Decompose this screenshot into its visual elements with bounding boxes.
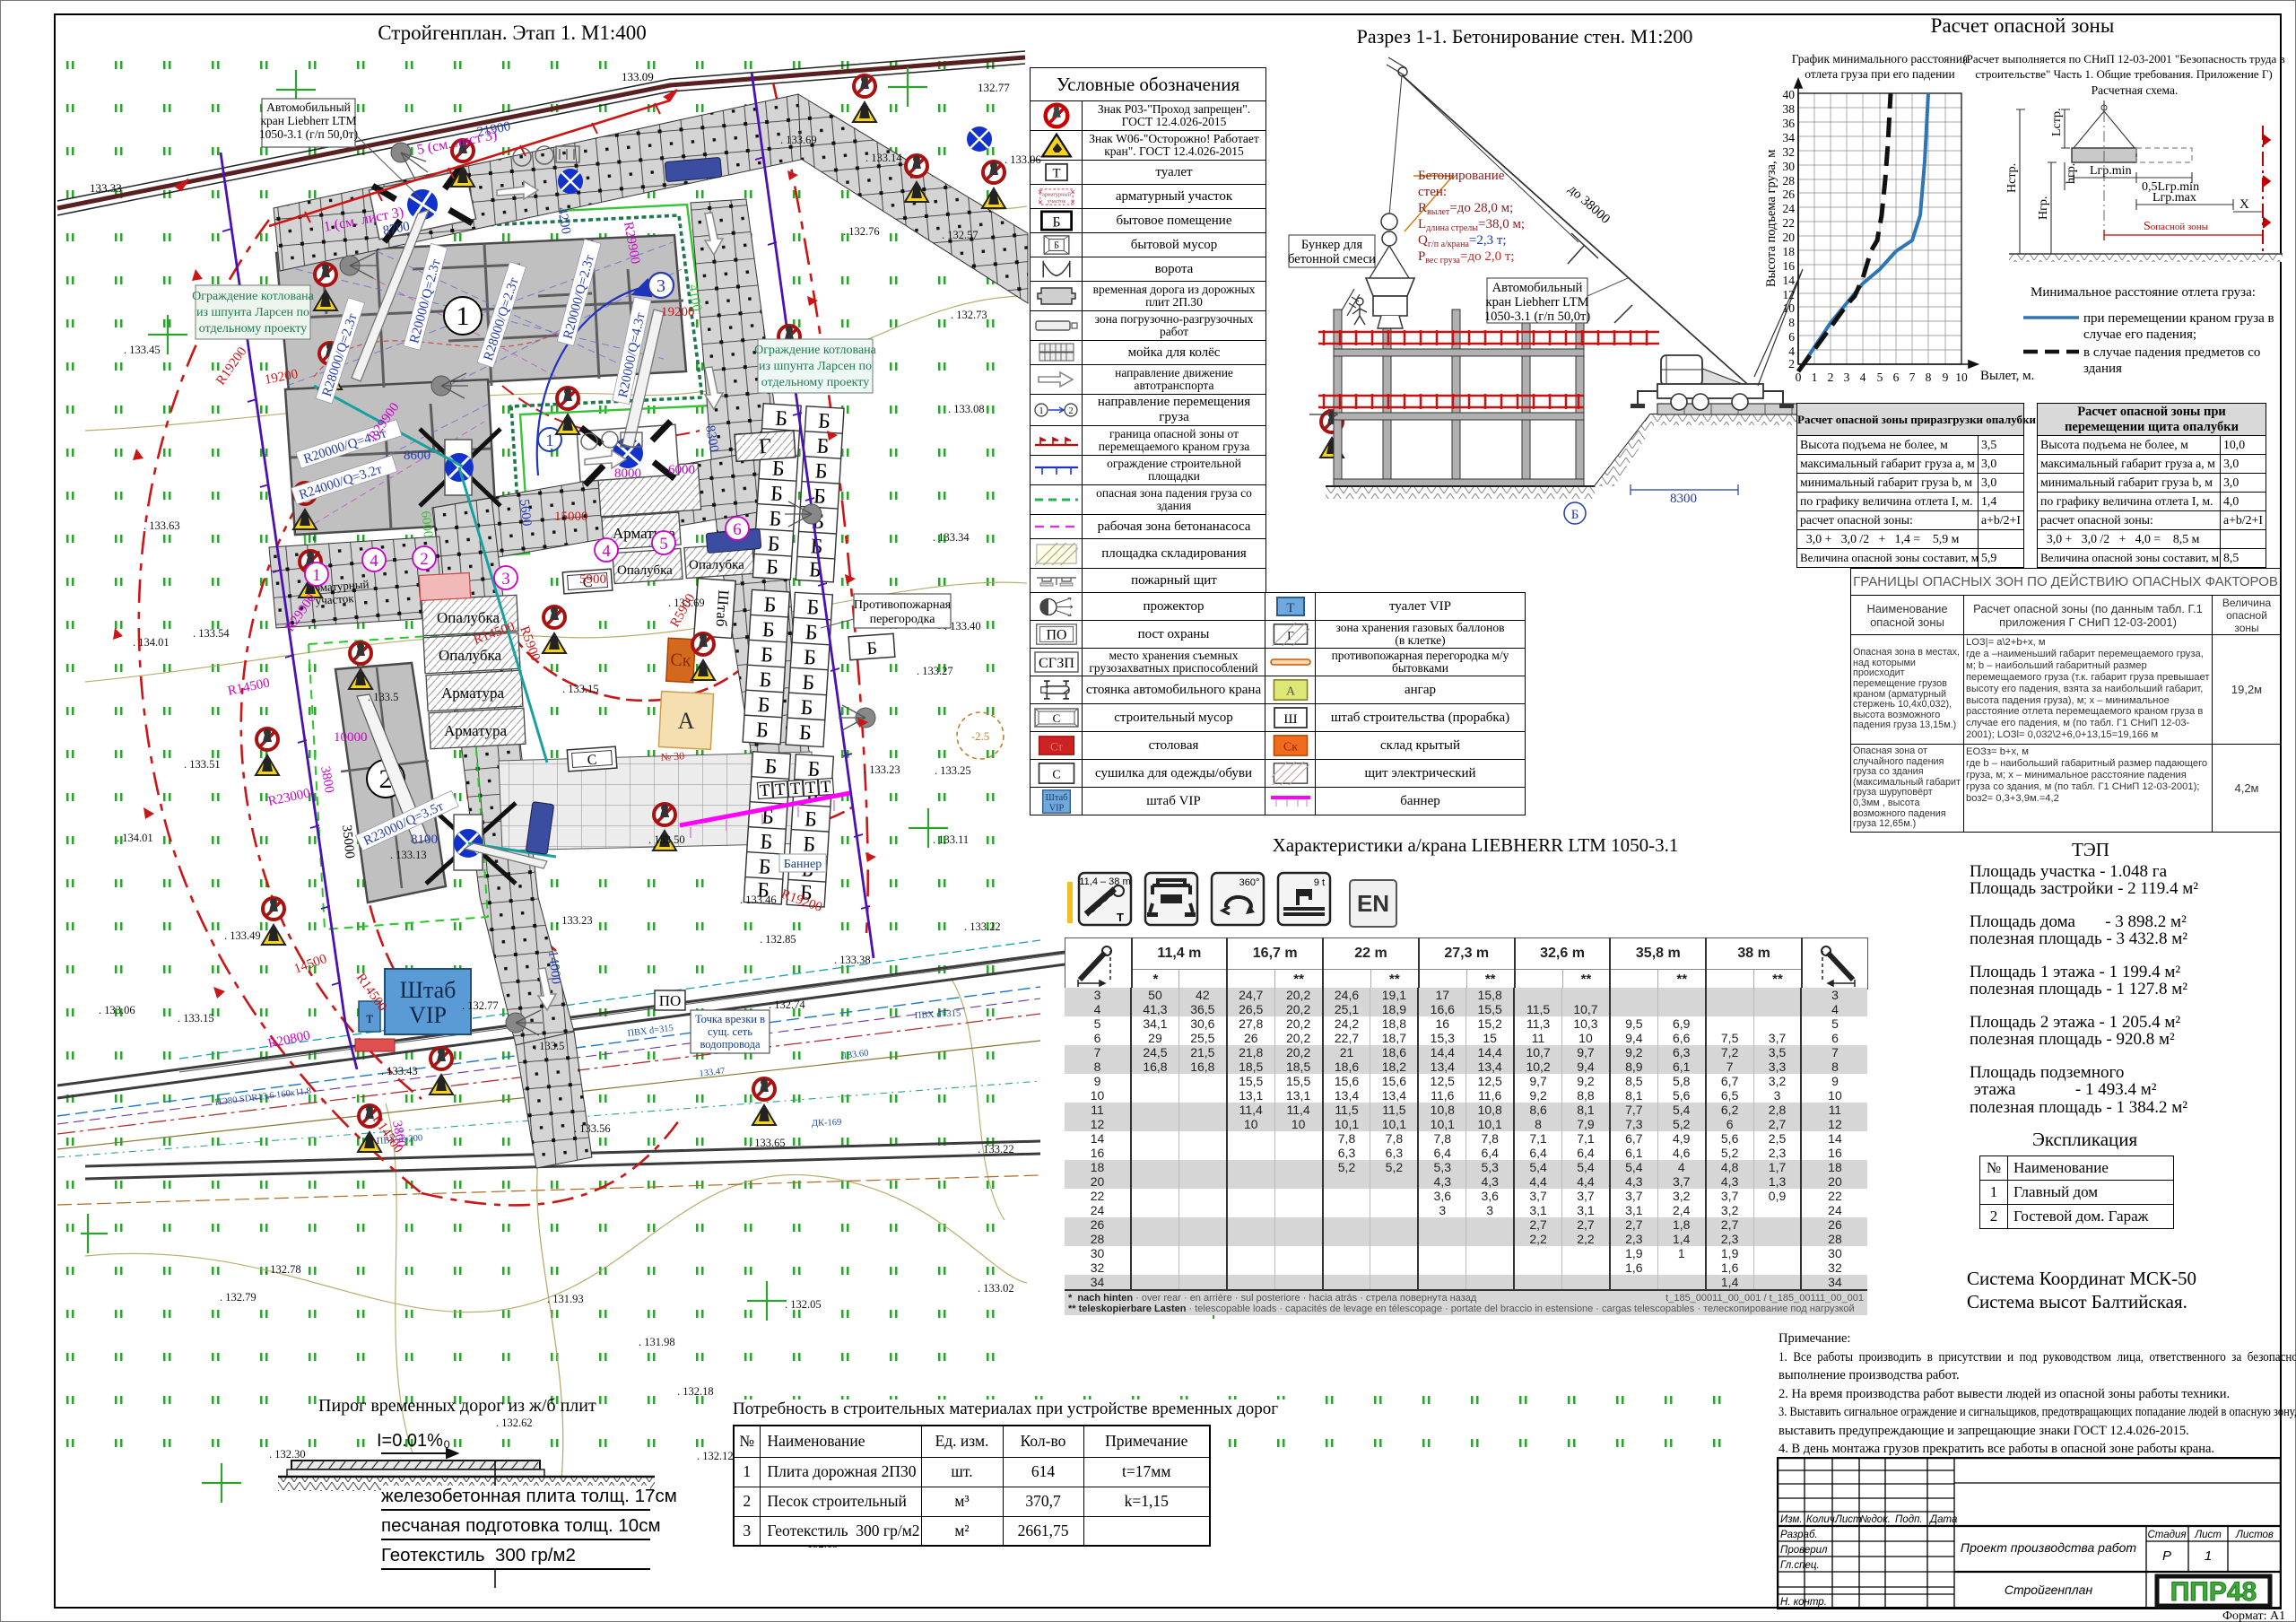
svg-text:4: 4 (602, 542, 611, 561)
svg-text:. 134.01: . 134.01 (117, 832, 153, 844)
svg-text:Расчетная схема.: Расчетная схема. (2092, 83, 2179, 97)
svg-text:Б: Б (769, 507, 782, 531)
svg-text:VIP: VIP (409, 1002, 447, 1028)
svg-text:. 133.38: . 133.38 (834, 954, 871, 966)
svg-text:Б: Б (1571, 508, 1579, 522)
svg-text:С: С (587, 753, 597, 769)
svg-text:Ш: Ш (1283, 712, 1297, 727)
svg-text:Ск: Ск (670, 650, 691, 670)
svg-text:1050-3.1 (г/п 50,0т): 1050-3.1 (г/п 50,0т) (259, 127, 358, 141)
svg-text:26: 26 (1783, 187, 1796, 201)
svg-text:Опалубка: Опалубка (689, 558, 744, 572)
svg-text:. 132.77: . 132.77 (462, 999, 499, 1012)
svg-text:Нгр.: Нгр. (2037, 196, 2050, 220)
svg-text:28: 28 (1783, 174, 1796, 187)
svg-text:6: 6 (733, 520, 742, 539)
svg-text:. 133.50: . 133.50 (648, 833, 685, 846)
svg-text:. 131.93: . 131.93 (547, 1293, 584, 1305)
svg-text:Б: Б (761, 618, 775, 642)
svg-text:. 133.69: . 133.69 (780, 134, 817, 146)
svg-text:hгр.: hгр. (2065, 163, 2078, 184)
svg-text:перегородка: перегородка (870, 613, 936, 626)
svg-text:6: 6 (1893, 371, 1900, 384)
svg-text:Б: Б (800, 696, 813, 720)
svg-text:Бетонирование: Бетонирование (1418, 169, 1505, 183)
svg-text:Минимальное расстояние отлета: Минимальное расстояние отлета груза: (2031, 285, 2256, 300)
svg-text:1: 1 (312, 566, 321, 585)
svg-text:8: 8 (1788, 316, 1795, 329)
svg-text:Б: Б (803, 833, 816, 857)
svg-text:. 133.15: . 133.15 (562, 683, 599, 695)
svg-text:. 133.23: . 133.23 (864, 763, 900, 776)
svg-text:С: С (1052, 711, 1060, 725)
svg-text:. 133.54: . 133.54 (193, 627, 230, 640)
svg-text:Вылет, м.: Вылет, м. (1980, 369, 2034, 383)
svg-text:36: 36 (1783, 117, 1796, 130)
svg-text:. 133.63: . 133.63 (143, 519, 180, 532)
svg-text:2: 2 (1068, 406, 1073, 416)
svg-text:(Расчет выполняется по СНиП 12: (Расчет выполняется по СНиП 12-03-2001 "… (1962, 52, 2284, 65)
svg-text:Б: Б (757, 693, 770, 718)
svg-text:1: 1 (457, 301, 470, 331)
svg-text:Т: Т (789, 780, 801, 799)
svg-text:Б: Б (759, 668, 772, 693)
svg-text:№док.: №док. (1860, 1514, 1891, 1525)
svg-text:15000: 15000 (554, 510, 588, 524)
svg-text:EN: EN (1357, 890, 1389, 917)
svg-text:Штаб: Штаб (400, 977, 457, 1003)
svg-text:2: 2 (1788, 357, 1795, 371)
svg-text:Б: Б (764, 755, 778, 780)
svg-text:3: 3 (657, 276, 665, 296)
svg-text:сущ. сеть: сущ. сеть (708, 1025, 752, 1038)
svg-text:11,4 – 38 m: 11,4 – 38 m (1079, 876, 1130, 887)
svg-text:Pвес груза=до 2,0 т;: Pвес груза=до 2,0 т; (1418, 249, 1515, 266)
svg-text:Г: Г (1287, 629, 1294, 642)
svg-text:Опалубка: Опалубка (437, 609, 500, 626)
svg-text:Расчет опасной зоны: Расчет опасной зоны (1931, 14, 2115, 37)
svg-text:Б: Б (798, 721, 812, 746)
svg-text:. 133.15: . 133.15 (178, 1012, 214, 1025)
svg-text:Б: Б (817, 410, 831, 434)
svg-text:участок: участок (1047, 198, 1065, 205)
svg-text:Б: Б (803, 646, 816, 670)
svg-text:20: 20 (1783, 231, 1796, 244)
svg-text:5600: 5600 (517, 499, 534, 528)
svg-text:10: 10 (1955, 371, 1968, 384)
svg-text:Т: Т (1286, 601, 1294, 615)
svg-text:Б: Б (1052, 214, 1060, 230)
svg-text:Б: Б (755, 719, 769, 743)
svg-text:Ск: Ск (1283, 741, 1297, 754)
svg-text:. 132.57: . 132.57 (942, 229, 978, 241)
svg-text:12: 12 (1783, 288, 1796, 301)
svg-text:32: 32 (1783, 145, 1796, 159)
svg-text:Стадия: Стадия (2147, 1530, 2186, 1540)
svg-text:132.77: 132.77 (978, 81, 1010, 94)
svg-text:133.09: 133.09 (622, 70, 654, 83)
svg-text:Разрез 1-1. Бетонирование стен: Разрез 1-1. Бетонирование стен. М1:200 (1357, 25, 1693, 48)
svg-text:А: А (1285, 685, 1294, 699)
svg-text:1: 1 (2205, 1548, 2212, 1564)
svg-text:34: 34 (1783, 131, 1796, 144)
svg-text:Баннер: Баннер (784, 858, 822, 871)
svg-text:Б: Б (770, 482, 783, 506)
svg-text:Б: Б (802, 671, 815, 695)
svg-text:Б: Б (804, 621, 818, 645)
svg-text:случае его падения;: случае его падения; (2083, 327, 2196, 342)
svg-text:. 131.98: . 131.98 (639, 1336, 675, 1348)
svg-text:. 133.23: . 133.23 (556, 914, 593, 927)
svg-text:. 132.79: . 132.79 (220, 1291, 257, 1304)
svg-text:9: 9 (1943, 371, 1949, 384)
svg-text:Б: Б (771, 458, 785, 482)
svg-text:Опалубка: Опалубка (617, 563, 673, 578)
svg-text:. 132.73: . 132.73 (951, 309, 987, 321)
svg-text:10: 10 (1783, 301, 1796, 315)
svg-text:Бункер для: Бункер для (1301, 238, 1363, 252)
svg-text:Разраб.: Разраб. (1780, 1530, 1818, 1540)
svg-text:. 133.22: . 133.22 (964, 920, 1001, 933)
svg-text:из шпунта Ларсен по: из шпунта Ларсен по (759, 360, 872, 373)
svg-text:кран Liebherr LTM: кран Liebherr LTM (260, 114, 356, 127)
svg-text:Б: Б (804, 807, 817, 832)
svg-text:Б: Б (814, 459, 828, 484)
svg-text:14: 14 (1783, 274, 1796, 287)
svg-text:4: 4 (1788, 344, 1795, 358)
svg-text:отдельному проекту: отдельному проекту (761, 376, 869, 389)
svg-text:7: 7 (1909, 371, 1916, 384)
svg-text:5: 5 (1877, 371, 1883, 384)
svg-text:3: 3 (501, 570, 510, 589)
svg-text:до 38000: до 38000 (1565, 182, 1613, 227)
svg-text:№ 30: № 30 (660, 749, 684, 763)
svg-text:Ст: Ст (1049, 740, 1062, 754)
svg-text:Lдлина стрелы=38,0 м;: Lдлина стрелы=38,0 м; (1418, 217, 1525, 233)
svg-text:. 133.65: . 133.65 (749, 1137, 786, 1149)
svg-text:4: 4 (1860, 371, 1866, 384)
svg-text:6000: 6000 (418, 510, 435, 539)
svg-text:1: 1 (545, 432, 554, 450)
svg-text:8000: 8000 (614, 467, 641, 481)
svg-text:Rвылет=до 28,0 м;: Rвылет=до 28,0 м; (1418, 201, 1513, 217)
svg-text:из шпунта Ларсен по: из шпунта Ларсен по (196, 306, 309, 319)
svg-text:водопровода: водопровода (700, 1038, 761, 1051)
svg-text:Т: Т (774, 780, 786, 800)
svg-text:2: 2 (420, 550, 429, 569)
svg-text:Н. контр.: Н. контр. (1780, 1597, 1827, 1608)
svg-text:Ограждение котлована: Ограждение котлована (192, 290, 315, 303)
svg-text:3: 3 (1844, 371, 1850, 384)
svg-text:Изм.: Изм. (1780, 1514, 1803, 1525)
svg-text:Б: Б (775, 407, 788, 432)
svg-text:. 133.06: . 133.06 (99, 1004, 135, 1016)
svg-text:Гл.спец.: Гл.спец. (1780, 1560, 1820, 1571)
svg-text:Штаб: Штаб (713, 589, 733, 627)
svg-text:Листов: Листов (2235, 1530, 2274, 1540)
svg-text:С: С (1052, 769, 1060, 782)
svg-text:А: А (678, 708, 695, 734)
svg-text:здания: здания (2083, 362, 2122, 376)
svg-text:X: X (2239, 197, 2249, 212)
svg-text:Проверил: Проверил (1780, 1545, 1828, 1556)
svg-text:. 132.74: . 132.74 (769, 998, 805, 1011)
svg-text:0: 0 (1796, 371, 1802, 384)
svg-text:Лист: Лист (1834, 1514, 1862, 1525)
svg-text:Б: Б (760, 643, 773, 667)
svg-text:Арматура: Арматура (441, 685, 504, 702)
svg-text:16: 16 (1783, 259, 1796, 273)
svg-text:Б: Б (763, 593, 777, 617)
svg-text:Колич.: Колич. (1806, 1514, 1838, 1525)
svg-text:Ограждение котлована: Ограждение котлована (754, 344, 877, 357)
svg-text:бетонной смеси: бетонной смеси (1288, 252, 1376, 266)
svg-text:отдельному проекту: отдельному проекту (199, 322, 307, 336)
svg-text:Т: Т (1052, 167, 1060, 181)
svg-text:Автомобильный: Автомобильный (1492, 281, 1583, 295)
svg-text:ПО: ПО (659, 992, 682, 1009)
svg-text:в случае падения предметов со: в случае падения предметов со (2083, 345, 2260, 360)
svg-text:Г: Г (758, 435, 772, 459)
svg-text:Б: Б (765, 555, 778, 580)
svg-text:Стройгенплан: Стройгенплан (2005, 1583, 2093, 1597)
svg-text:360°: 360° (1239, 877, 1260, 888)
svg-text:Б: Б (866, 639, 878, 659)
svg-text:стен:: стен: (1418, 185, 1447, 199)
svg-text:133.33: 133.33 (90, 181, 122, 195)
svg-text:Б: Б (1054, 241, 1059, 251)
svg-text:при перемещении краном груза в: при перемещении краном груза в (2083, 311, 2274, 326)
svg-text:строительстве" Часть 1. Общие: строительстве" Часть 1. Общие требования… (1975, 67, 2272, 81)
svg-text:40: 40 (1783, 88, 1796, 101)
svg-text:I=0.01%₀: I=0.01%₀ (377, 1431, 450, 1451)
svg-text:. 133.25: . 133.25 (935, 764, 971, 777)
svg-text:8: 8 (1926, 371, 1932, 384)
svg-text:8100: 8100 (411, 833, 438, 847)
svg-text:. 132.85: . 132.85 (760, 933, 796, 946)
svg-text:22: 22 (1783, 216, 1796, 230)
svg-text:9 t: 9 t (1314, 877, 1325, 888)
svg-text:. 133.14: . 133.14 (865, 152, 902, 164)
svg-text:Б: Б (816, 435, 830, 459)
svg-text:18: 18 (1783, 245, 1796, 258)
svg-text:. 132.18: . 132.18 (677, 1385, 714, 1398)
svg-text:Высота подъема груза, м: Высота подъема груза, м (1764, 150, 1779, 287)
svg-text:. 133.5: . 133.5 (368, 691, 398, 703)
svg-text:24: 24 (1783, 202, 1796, 215)
svg-text:. 133.22: . 133.22 (978, 1143, 1014, 1155)
svg-text:1050-3.1 (г/п 50,0т): 1050-3.1 (г/п 50,0т) (1484, 310, 1590, 324)
svg-text:Автомобильный: Автомобильный (266, 100, 351, 114)
svg-text:участок: участок (315, 591, 355, 607)
svg-text:Опалубка: Опалубка (439, 647, 501, 664)
svg-text:. 133.43: . 133.43 (381, 1065, 418, 1077)
svg-text:арматурный: арматурный (1042, 191, 1071, 197)
svg-text:ДК-169: ДК-169 (812, 1118, 842, 1129)
svg-text:4: 4 (370, 552, 378, 571)
svg-text:. 133.13: . 133.13 (390, 849, 427, 861)
svg-text:Б: Б (806, 596, 820, 620)
svg-text:10000: 10000 (334, 730, 368, 745)
svg-text:СГЗП: СГЗП (1039, 656, 1074, 671)
svg-text:Штаб: Штаб (1045, 792, 1067, 802)
svg-text:VIP: VIP (1048, 803, 1064, 813)
svg-text:Т: Т (820, 778, 831, 798)
svg-text:6: 6 (1788, 330, 1795, 344)
svg-text:Дата: Дата (1928, 1514, 1957, 1525)
svg-text:. 132.78: . 132.78 (265, 1263, 301, 1276)
svg-text:Б: Б (760, 830, 773, 854)
svg-text:т: т (366, 1008, 373, 1026)
svg-text:T: T (1117, 911, 1124, 924)
svg-text:Б: Б (767, 532, 780, 556)
svg-text:отлета груза при его падении: отлета груза при его падении (1805, 67, 1955, 81)
svg-text:Lгр.min: Lгр.min (2090, 164, 2132, 178)
svg-text:30: 30 (1783, 160, 1796, 173)
svg-text:. 133.56: . 133.56 (574, 1122, 611, 1135)
svg-text:Точка врезки в: Точка врезки в (695, 1013, 765, 1025)
svg-text:ПО: ПО (1046, 628, 1066, 643)
svg-text:. 132.76: . 132.76 (843, 225, 880, 238)
svg-text:ППР48: ППР48 (2170, 1577, 2257, 1607)
svg-text:Нстр.: Нстр. (2005, 163, 2019, 193)
svg-text:. 133.46: . 133.46 (740, 894, 777, 906)
svg-text:5: 5 (659, 535, 668, 554)
svg-text:График минимального расстояния: График минимального расстояния (1792, 52, 1968, 65)
svg-text:. 133.34: . 133.34 (933, 531, 970, 544)
svg-text:Р: Р (2162, 1548, 2171, 1564)
svg-text:Подп.: Подп. (1895, 1514, 1923, 1525)
svg-text:Арматура: Арматура (444, 722, 507, 739)
svg-text:8600: 8600 (404, 449, 430, 463)
svg-text:38: 38 (1783, 102, 1796, 116)
svg-text:. 133.51: . 133.51 (184, 758, 221, 771)
svg-text:. 133.08: . 133.08 (948, 403, 985, 415)
svg-text:. 133.11: . 133.11 (933, 833, 969, 846)
svg-text:Т: Т (759, 781, 770, 801)
svg-text:. 133.27: . 133.27 (917, 665, 953, 677)
svg-text:. 133.49: . 133.49 (224, 929, 261, 942)
svg-text:Lстр.: Lстр. (2050, 108, 2064, 136)
svg-text:. 133.02: . 133.02 (978, 1282, 1014, 1295)
svg-text:Т: Т (804, 779, 816, 798)
svg-text:. 132.05: . 132.05 (785, 1298, 822, 1311)
svg-text:. 132.12: . 132.12 (697, 1450, 734, 1462)
svg-text:5900: 5900 (579, 572, 606, 587)
svg-text:1: 1 (1812, 371, 1818, 384)
svg-text:. 133.45: . 133.45 (124, 344, 161, 356)
svg-text:. 133.5: . 133.5 (534, 1040, 564, 1052)
svg-text:-2.5: -2.5 (971, 729, 990, 743)
svg-text:Б: Б (758, 855, 771, 879)
svg-text:. 134.01: . 134.01 (133, 636, 170, 649)
svg-text:Противопожарная: Противопожарная (854, 598, 952, 612)
svg-text:2: 2 (1828, 371, 1834, 384)
svg-text:Lгр.max: Lгр.max (2152, 191, 2196, 205)
svg-text:Qг/п а/крана=2,3 т;: Qг/п а/крана=2,3 т; (1418, 233, 1507, 249)
svg-text:6000: 6000 (668, 463, 695, 477)
svg-text:Проект производства работ: Проект производства работ (1961, 1540, 2136, 1555)
svg-text:Лист: Лист (2194, 1530, 2222, 1540)
svg-text:1: 1 (1039, 406, 1043, 416)
svg-text:кран Liebherr LTM: кран Liebherr LTM (1486, 295, 1589, 310)
svg-text:8300: 8300 (1670, 492, 1697, 506)
svg-text:Sопасной зоны: Sопасной зоны (2144, 220, 2209, 233)
